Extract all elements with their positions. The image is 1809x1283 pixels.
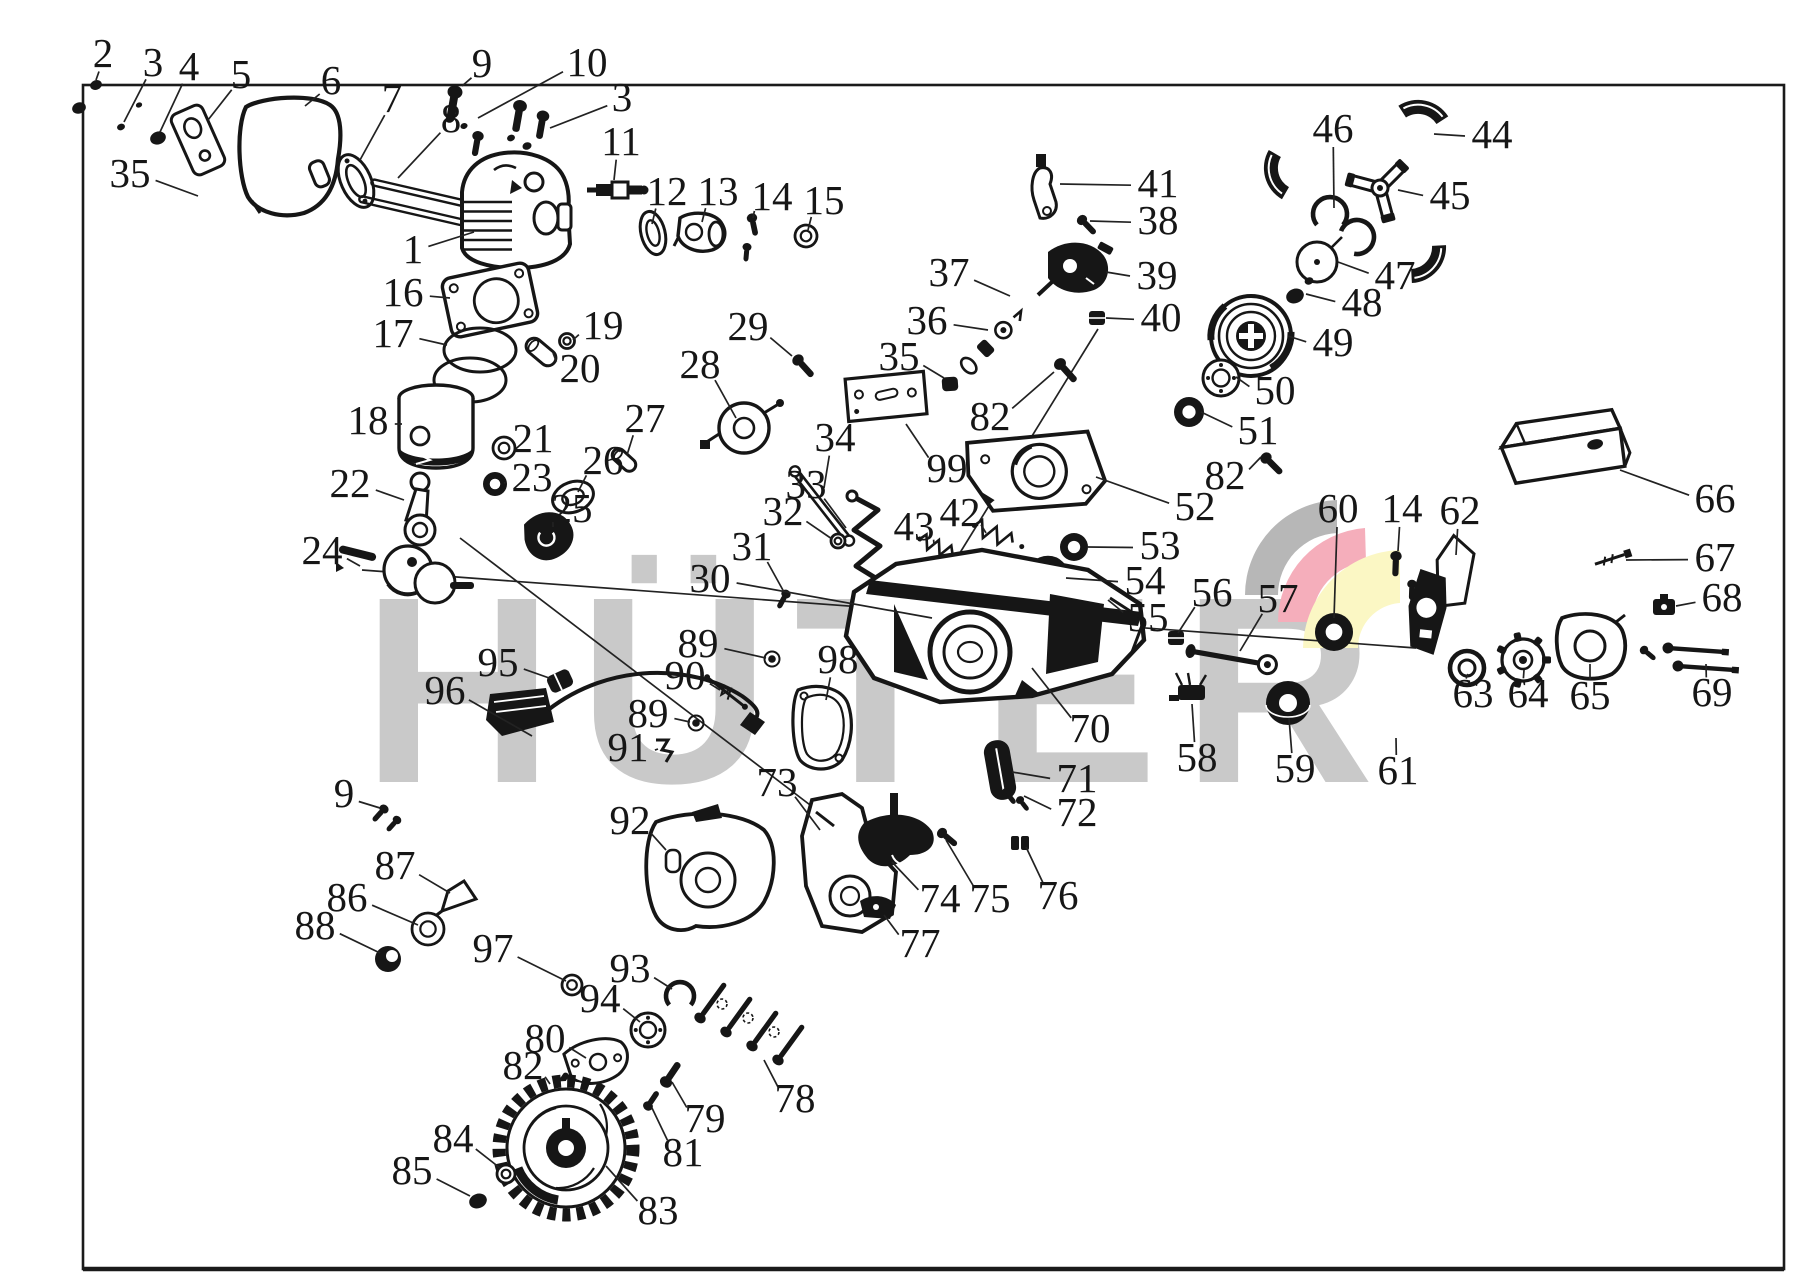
diagram-svg: HÜTER 1234567891031112131415351617192018… — [0, 0, 1809, 1283]
part-callout: 3 — [612, 74, 633, 120]
part-callout: 83 — [638, 1187, 679, 1233]
part-cap88 — [375, 946, 401, 972]
part-callout: 55 — [1128, 594, 1169, 640]
part-callout: 22 — [330, 460, 371, 506]
part-callout: 9 — [472, 40, 493, 86]
part-callout: 56 — [1192, 569, 1233, 615]
part-callout: 82 — [503, 1042, 544, 1088]
part-callout: 18 — [348, 397, 389, 443]
part-boltv — [469, 130, 485, 157]
part-clip68 — [1653, 594, 1675, 615]
part-callout: 40 — [1141, 294, 1182, 340]
part-callout: 65 — [1570, 672, 1611, 718]
part-callout: 38 — [1138, 197, 1179, 243]
part-callout: 73 — [757, 759, 798, 805]
part-callout: 59 — [1275, 745, 1316, 791]
part-callout: 46 — [1313, 105, 1354, 151]
part-callout: 7 — [382, 75, 403, 121]
part-callout: 30 — [690, 555, 731, 601]
part-callout: 70 — [1070, 705, 1111, 751]
part-dot — [1284, 286, 1306, 306]
part-callout: 19 — [583, 302, 624, 348]
diagram-canvas: HÜTER 1234567891031112131415351617192018… — [0, 0, 1809, 1283]
part-callout: 44 — [1472, 111, 1513, 157]
part-callout: 92 — [610, 797, 651, 843]
part-dot — [467, 1191, 489, 1211]
part-plate5 — [169, 103, 227, 177]
part-callout: 77 — [900, 920, 941, 966]
part-callout: 27 — [625, 395, 666, 441]
part-callout: 39 — [1137, 252, 1178, 298]
part-shoe — [1396, 95, 1450, 126]
part-callout: 28 — [680, 341, 721, 387]
part-screw67 — [1594, 549, 1633, 568]
part-callout: 85 — [392, 1147, 433, 1193]
part-callout: 64 — [1508, 670, 1549, 716]
part-callout: 3 — [143, 39, 164, 85]
part-cyl1 — [462, 152, 571, 268]
part-callout: 82 — [970, 393, 1011, 439]
part-callout: 76 — [1038, 872, 1079, 918]
part-carc — [1313, 197, 1347, 225]
part-disc47 — [1297, 237, 1342, 282]
part-callout: 16 — [383, 269, 424, 315]
part-callout: 20 — [560, 345, 601, 391]
part-mani13 — [674, 213, 725, 251]
part-callout: 9 — [334, 770, 355, 816]
part-callout: 99 — [927, 445, 968, 491]
part-callout: 95 — [478, 639, 519, 685]
part-callout: 8 — [441, 95, 462, 141]
part-callout: 35 — [110, 150, 151, 196]
part-callout: 88 — [295, 902, 336, 948]
part-callout: 23 — [512, 454, 553, 500]
part-gask62 — [1432, 534, 1475, 609]
part-callout: 29 — [728, 303, 769, 349]
part-callout: 61 — [1378, 747, 1419, 793]
part-rod22 — [405, 473, 435, 545]
part-bring — [1315, 613, 1353, 651]
part-dot — [89, 78, 104, 91]
part-nut56 — [1168, 631, 1184, 645]
part-callout: 52 — [1175, 483, 1216, 529]
exploded-parts-diagram: HÜTER 1234567891031112131415351617192018… — [0, 0, 1809, 1283]
part-callout: 87 — [375, 842, 416, 888]
part-callout: 11 — [601, 118, 640, 164]
part-callout: 14 — [752, 173, 793, 219]
part-callout: 51 — [1238, 407, 1279, 453]
part-callout: 35 — [879, 333, 920, 379]
part-lever41 — [1032, 154, 1056, 218]
part-dot — [506, 134, 516, 143]
part-bring — [1060, 533, 1088, 561]
part-dot — [71, 100, 88, 115]
part-pump39 — [1038, 241, 1114, 295]
part-gask98 — [793, 686, 851, 769]
part-callout: 43 — [894, 503, 935, 549]
part-callout: 12 — [647, 168, 688, 214]
part-callout: 81 — [663, 1129, 704, 1175]
part-callout: 31 — [732, 523, 773, 569]
part-cover92 — [646, 804, 774, 930]
part-callout: 15 — [804, 177, 845, 223]
part-shoe — [1259, 147, 1292, 202]
part-pist18 — [399, 385, 473, 468]
part-callout: 90 — [665, 652, 706, 698]
part-callout: 66 — [1695, 475, 1736, 521]
part-drum59 — [1266, 681, 1310, 725]
part-callout: 10 — [567, 39, 608, 85]
part-boltv — [1638, 644, 1658, 663]
part-callout: 98 — [818, 636, 859, 682]
part-bring — [1174, 397, 1204, 427]
part-gask16 — [441, 262, 540, 339]
part-boltv — [1258, 450, 1286, 478]
part-carb28 — [700, 399, 784, 453]
part-callout: 25 — [552, 485, 593, 531]
part-callout: 6 — [321, 57, 342, 103]
part-dot — [521, 141, 532, 151]
part-pin20 — [523, 335, 559, 369]
part-callout: 24 — [302, 527, 343, 573]
part-set78 — [692, 980, 808, 1068]
part-fly83 — [499, 1081, 633, 1215]
part-callout: 72 — [1057, 789, 1098, 835]
part-callout: 60 — [1318, 485, 1359, 531]
part-dot — [135, 101, 143, 108]
part-callout: 58 — [1177, 734, 1218, 780]
part-ring — [412, 913, 444, 945]
part-bring — [483, 472, 507, 496]
part-callout: 49 — [1313, 319, 1354, 365]
part-callout: 94 — [580, 975, 621, 1021]
part-callout: 4 — [179, 43, 200, 89]
part-ring — [831, 534, 845, 548]
part-callout: 74 — [920, 875, 961, 921]
part-bear94 — [1203, 360, 1239, 396]
part-tank66 — [1497, 400, 1633, 492]
part-boltv — [658, 1059, 684, 1090]
part-plug11 — [587, 182, 649, 198]
part-callout: 1 — [403, 226, 424, 272]
part-boltv — [533, 109, 550, 139]
part-callout: 63 — [1453, 670, 1494, 716]
part-callout: 26 — [583, 437, 624, 483]
part-boltv — [790, 352, 817, 380]
part-callout: 62 — [1440, 487, 1481, 533]
part-callout: 17 — [373, 310, 414, 356]
part-cover6 — [239, 98, 340, 216]
part-callout: 57 — [1258, 575, 1299, 621]
part-callout: 84 — [433, 1115, 474, 1161]
part-callout: 69 — [1692, 669, 1733, 715]
part-chain35 — [937, 311, 1026, 392]
part-boltv — [741, 243, 752, 262]
part-callout: 42 — [940, 489, 981, 535]
part-nut56 — [1089, 311, 1105, 325]
part-callout: 68 — [1702, 574, 1743, 620]
part-bolth — [1662, 642, 1729, 658]
part-callout: 45 — [1430, 172, 1471, 218]
part-boltv — [1075, 213, 1099, 237]
part-callout: 34 — [815, 414, 856, 460]
part-dot — [116, 123, 126, 132]
part-dot — [148, 129, 167, 147]
part-ring — [792, 222, 820, 250]
part-callout: 75 — [970, 875, 1011, 921]
part-callout: 13 — [698, 168, 739, 214]
part-gask12 — [636, 209, 670, 257]
part-callout: 97 — [473, 925, 514, 971]
part-callout: 91 — [608, 724, 649, 770]
part-callout: 5 — [231, 51, 252, 97]
part-callout: 78 — [775, 1075, 816, 1121]
part-callout: 14 — [1382, 485, 1423, 531]
part-carc — [666, 982, 694, 1005]
part-callout: 96 — [425, 667, 466, 713]
part-callout: 37 — [929, 249, 970, 295]
part-cover65 — [1557, 614, 1625, 679]
part-callout: 2 — [93, 30, 114, 76]
part-boltv — [509, 99, 528, 133]
